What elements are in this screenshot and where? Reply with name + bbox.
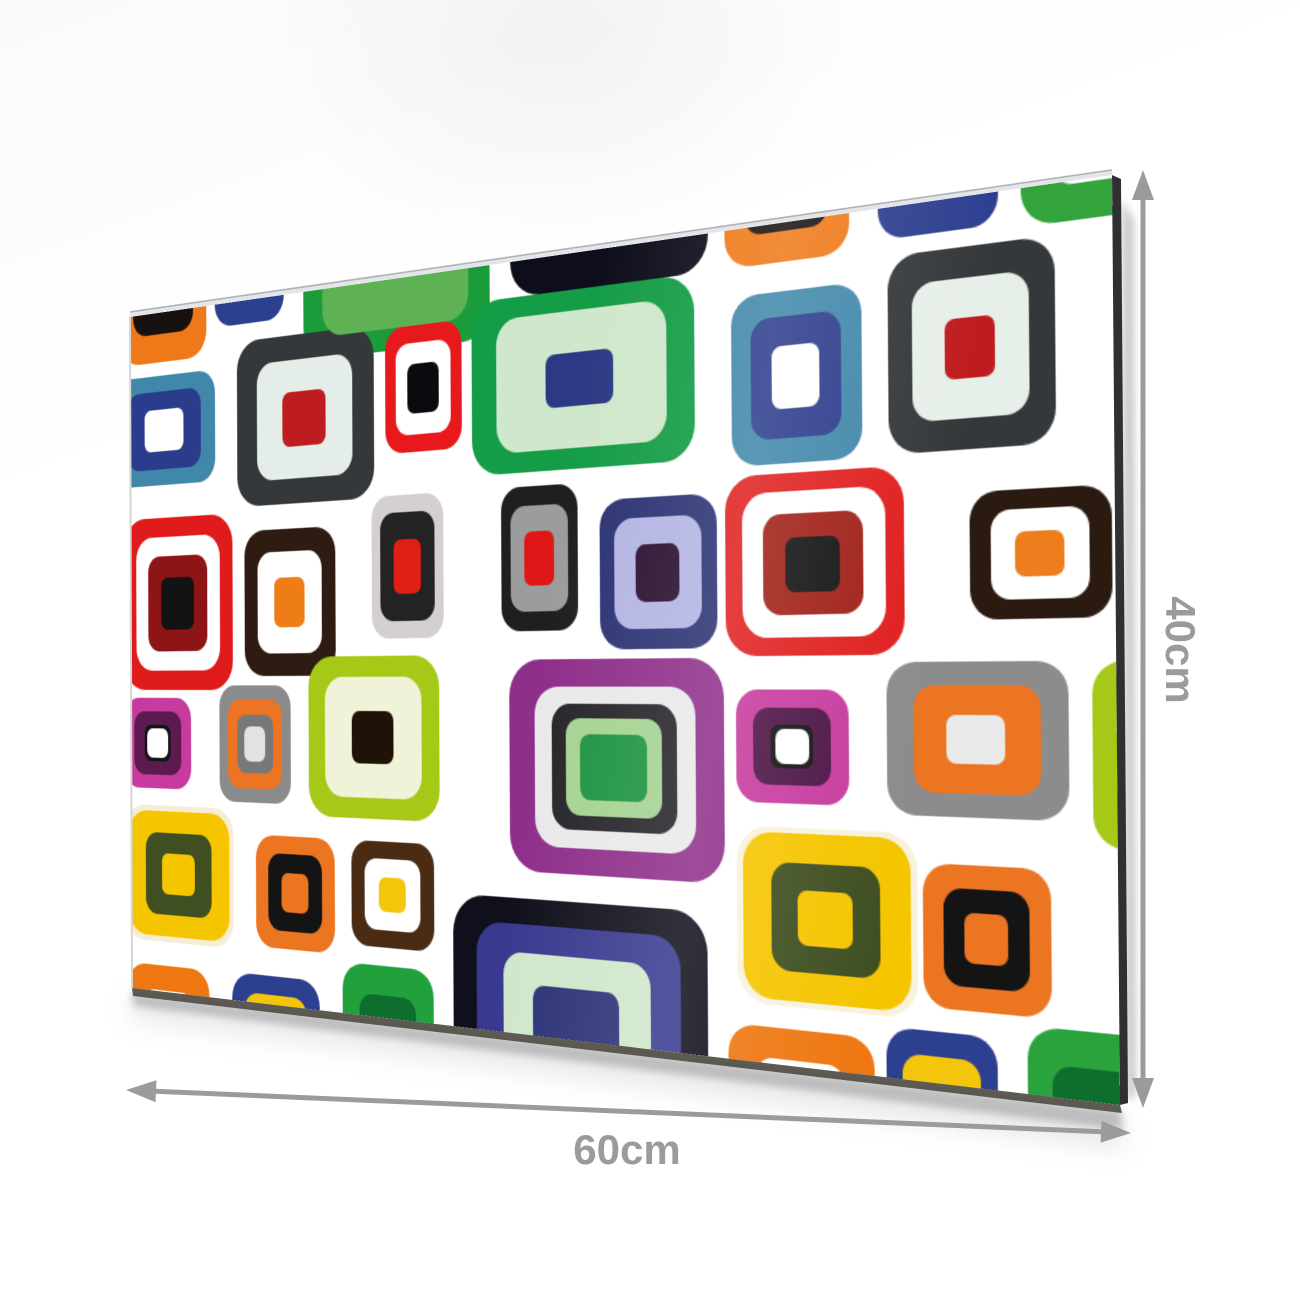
glass-reflection <box>130 175 1120 1105</box>
glass-print-panel <box>130 175 1120 1105</box>
product-mockup-scene: 40cm 60cm <box>0 0 1300 1300</box>
height-dimension-label: 40cm <box>1156 596 1204 703</box>
width-dimension-label: 60cm <box>573 1126 680 1174</box>
